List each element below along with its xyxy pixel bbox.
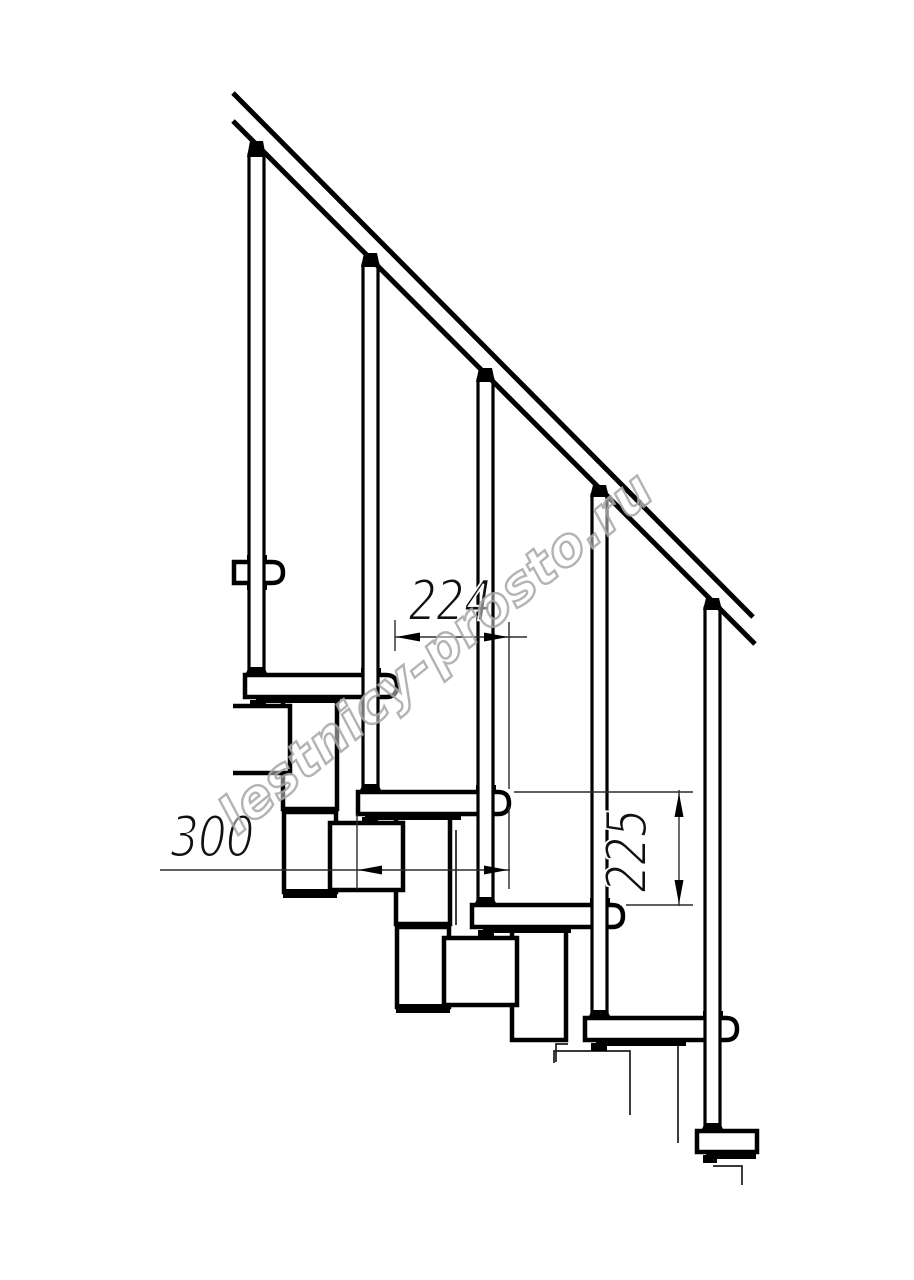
tread5-mount-tab — [591, 1043, 607, 1051]
baluster4-foot — [588, 1010, 611, 1018]
tread6-mount-tab — [703, 1155, 717, 1163]
baluster-1 — [249, 155, 264, 675]
baluster-4 — [592, 495, 607, 1018]
module-v3-box — [397, 927, 449, 1007]
module-box-step5-hidden — [554, 1051, 630, 1115]
module-box-step4 — [444, 938, 517, 1005]
tread-6 — [697, 1131, 757, 1152]
baluster2-foot — [359, 784, 382, 792]
tread3-under-strip — [365, 814, 461, 820]
tread4-under-strip — [483, 927, 571, 933]
column-step4 — [512, 926, 566, 1040]
baluster5-foot — [701, 1123, 724, 1131]
hidden-jog-step4 — [556, 1044, 568, 1062]
tread4-mount-tab — [478, 930, 494, 938]
technical-drawing-page: 224 300 225 lestnicy-prosto.ru — [0, 0, 914, 1280]
dim225-arrow-up — [675, 793, 684, 817]
module-box-step3 — [330, 823, 403, 890]
baluster-5 — [705, 608, 720, 1131]
dimension-rise-label: 225 — [594, 809, 659, 892]
dim225-arrow-down — [675, 880, 684, 904]
hidden-jog-step6 — [713, 1166, 742, 1185]
tread5-under-strip — [596, 1040, 686, 1046]
staircase-drawing-svg: 224 300 225 lestnicy-prosto.ru — [0, 0, 914, 1280]
dim300-arrow-right — [484, 866, 508, 875]
tread3-mount-tab — [362, 817, 378, 825]
baluster1-foot — [245, 667, 268, 675]
tread2-mount-tab — [250, 700, 266, 708]
baluster3-foot — [474, 897, 497, 905]
